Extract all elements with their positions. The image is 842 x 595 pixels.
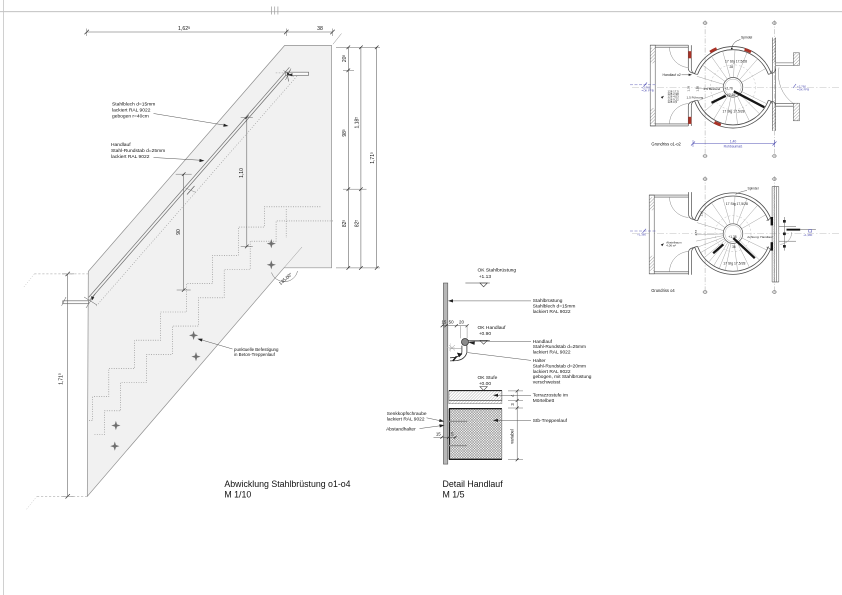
svg-text:Stb-Treppenlauf: Stb-Treppenlauf [533, 418, 568, 424]
svg-text:Abwicklung Stahlbrüstung o1-o4: Abwicklung Stahlbrüstung o1-o4 [224, 479, 350, 489]
svg-text:90: 90 [176, 229, 182, 235]
svg-text:50: 50 [449, 320, 454, 325]
svg-text:=OK FFB: =OK FFB [642, 88, 654, 92]
svg-text:OK Stahlbrüstung: OK Stahlbrüstung [478, 268, 517, 274]
svg-text:1,10: 1,10 [700, 210, 704, 216]
svg-text:Senkkopfschraubelackiert RAL 9: Senkkopfschraubelackiert RAL 9022 [387, 411, 427, 422]
svg-text:128 0,5: 128 0,5 [668, 100, 678, 104]
svg-text:+0.00: +0.00 [479, 381, 492, 387]
svg-text:M 1/5: M 1/5 [443, 490, 465, 500]
svg-text:17 Stg 17,5/28: 17 Stg 17,5/28 [725, 60, 747, 64]
svg-text:1,02: 1,02 [696, 85, 700, 91]
svg-text:17 Stg 17,5/28: 17 Stg 17,5/28 [723, 261, 745, 265]
svg-text:punktuelle Befestigungin Beton: punktuelle Befestigungin Beton-Treppenla… [234, 347, 279, 357]
svg-text:+0.90: +0.90 [479, 331, 492, 337]
svg-text:1,5 Führung: 1,5 Führung [687, 95, 704, 99]
svg-text:+1,380: +1,380 [637, 232, 646, 236]
svg-text:Achtung: Handlauf: Achtung: Handlauf [747, 235, 773, 239]
svg-text:variabel: variabel [510, 429, 515, 444]
svg-text:Abstandhalter: Abstandhalter [386, 426, 416, 432]
svg-text:M 1/10: M 1/10 [224, 490, 251, 500]
svg-text:17 Stg 17,5/28: 17 Stg 17,5/28 [726, 202, 748, 206]
svg-text:OK Handlauf: OK Handlauf [478, 325, 507, 331]
svg-text:+1.13: +1.13 [479, 274, 492, 280]
svg-text:2% Bestand: 2% Bestand [704, 87, 721, 91]
svg-text:20: 20 [459, 320, 464, 325]
svg-text:1,10: 1,10 [239, 168, 245, 178]
svg-text:Spindel: Spindel [741, 36, 753, 40]
svg-text:4,57: 4,57 [694, 229, 698, 235]
svg-text:15: 15 [441, 320, 446, 325]
svg-text:+2,76: +2,76 [725, 86, 734, 90]
svg-text:Handlauf o2: Handlauf o2 [663, 73, 681, 77]
svg-text:Rohbaumaß: Rohbaumaß [724, 145, 743, 149]
svg-text:Spindel: Spindel [748, 187, 759, 191]
svg-text:Grundriss o4: Grundriss o4 [651, 288, 675, 293]
svg-text:1,33: 1,33 [686, 85, 690, 91]
svg-text:36: 36 [732, 245, 736, 249]
svg-text:17 Stg 17,5/28: 17 Stg 17,5/28 [723, 109, 745, 113]
svg-text:15: 15 [436, 432, 441, 437]
svg-text:+2,59: +2,59 [727, 93, 736, 97]
svg-text:=OK FFB: =OK FFB [797, 87, 809, 91]
svg-text:4,06 m²: 4,06 m² [666, 243, 676, 247]
svg-text:Detail Handlauf: Detail Handlauf [443, 479, 504, 489]
svg-text:Grundriss o1-o2: Grundriss o1-o2 [651, 141, 681, 146]
svg-text:1,40: 1,40 [730, 139, 737, 143]
svg-text:OK Stufe: OK Stufe [478, 375, 498, 381]
svg-text:38: 38 [317, 26, 323, 32]
svg-text:28: 28 [730, 65, 734, 69]
svg-text:+1,380: +1,380 [803, 233, 812, 237]
svg-text:+1,38: +1,38 [728, 235, 737, 239]
